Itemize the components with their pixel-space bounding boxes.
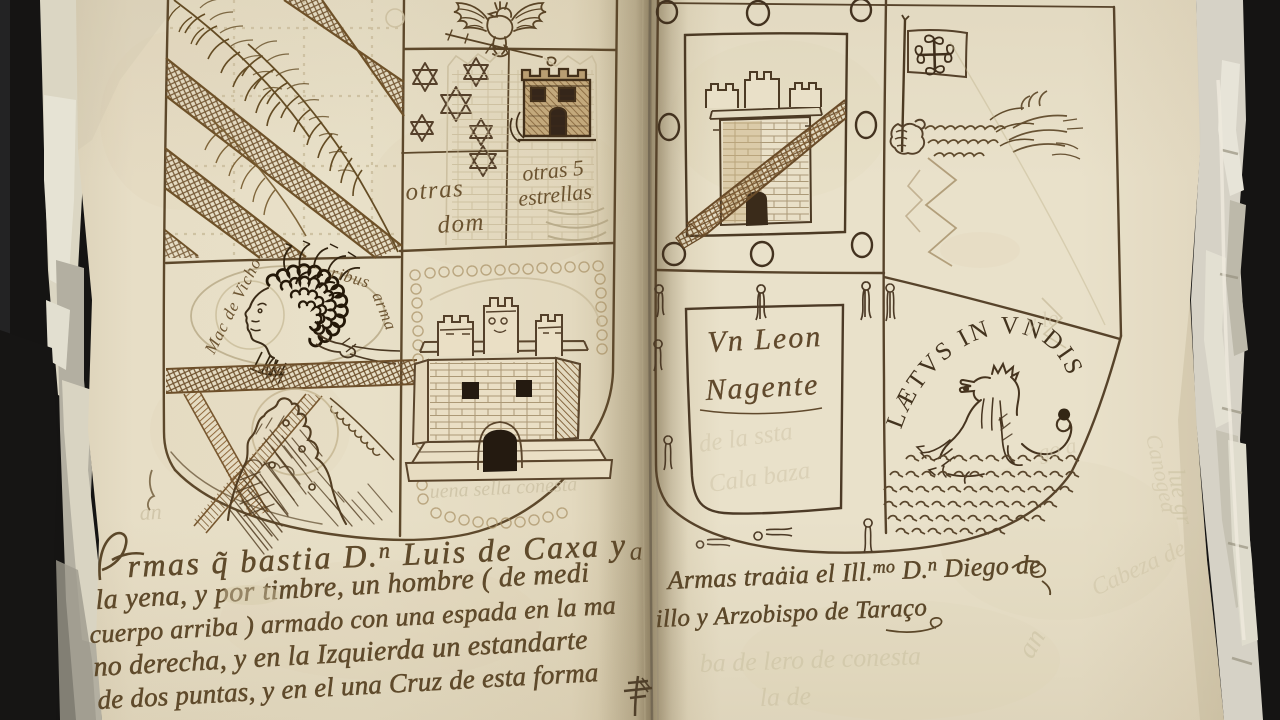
svg-text:a: a	[629, 536, 643, 566]
svg-text:otras: otras	[405, 175, 466, 206]
svg-text:Vn Leon: Vn Leon	[707, 320, 823, 359]
svg-text:an: an	[139, 499, 162, 525]
svg-text:Nagente: Nagente	[704, 368, 821, 407]
svg-text:dom: dom	[437, 209, 486, 239]
svg-text:la de: la de	[759, 681, 811, 712]
